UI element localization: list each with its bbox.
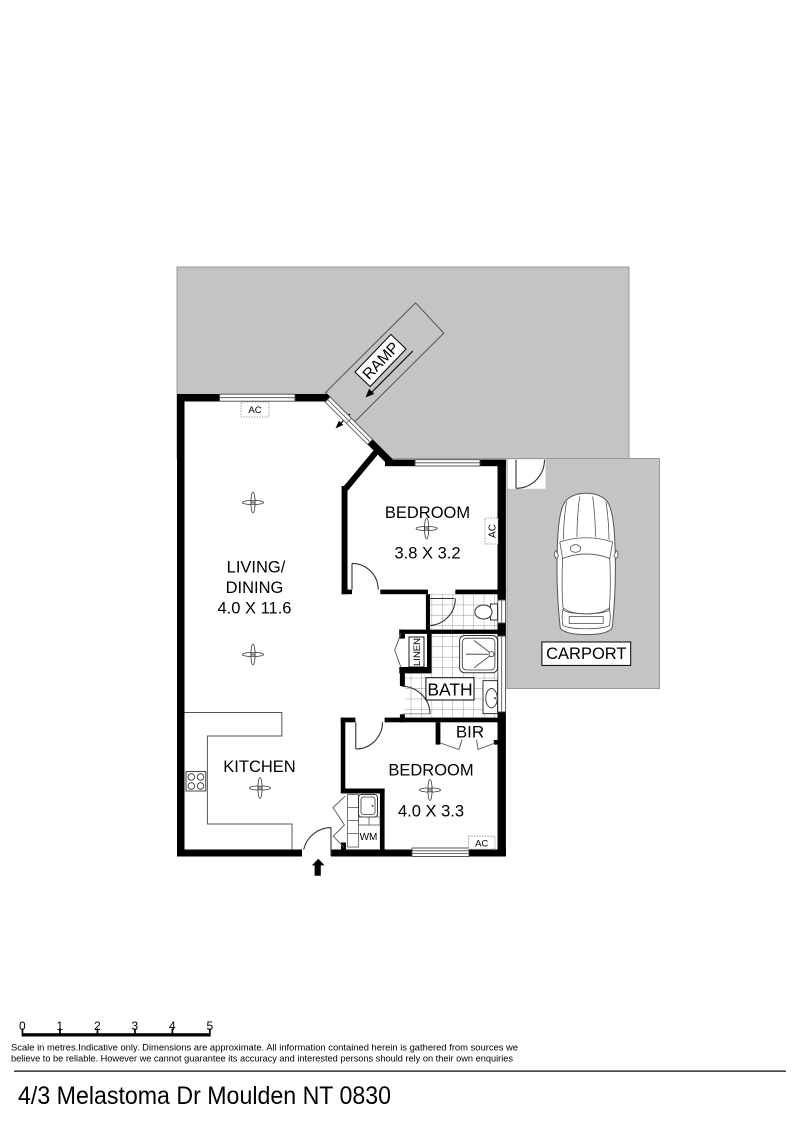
svg-text:LINEN: LINEN bbox=[412, 638, 423, 666]
svg-text:1: 1 bbox=[57, 1019, 64, 1033]
svg-text:AC: AC bbox=[487, 524, 498, 538]
svg-text:AC: AC bbox=[475, 839, 488, 850]
svg-text:2: 2 bbox=[94, 1019, 101, 1033]
svg-text:BEDROOM: BEDROOM bbox=[385, 504, 470, 522]
svg-text:4.0 X 3.3: 4.0 X 3.3 bbox=[398, 803, 464, 821]
svg-text:believe to be reliable. Howeve: believe to be reliable. However we canno… bbox=[11, 1052, 513, 1063]
svg-text:BATH: BATH bbox=[427, 680, 472, 700]
svg-text:4: 4 bbox=[169, 1019, 176, 1033]
svg-text:Scale in metres.Indicative onl: Scale in metres.Indicative only. Dimensi… bbox=[11, 1041, 518, 1052]
svg-text:3.8 X 3.2: 3.8 X 3.2 bbox=[394, 545, 460, 563]
svg-text:4/3 Melastoma Dr Moulden NT 08: 4/3 Melastoma Dr Moulden NT 0830 bbox=[18, 1082, 391, 1110]
svg-text:DINING: DINING bbox=[226, 579, 284, 597]
svg-text:0: 0 bbox=[19, 1019, 26, 1033]
svg-text:5: 5 bbox=[207, 1019, 214, 1033]
svg-text:AC: AC bbox=[248, 405, 261, 416]
svg-text:4.0 X 11.6: 4.0 X 11.6 bbox=[217, 600, 291, 618]
svg-text:LIVING/: LIVING/ bbox=[227, 559, 286, 577]
svg-text:KITCHEN: KITCHEN bbox=[223, 758, 295, 776]
svg-text:CARPORT: CARPORT bbox=[546, 645, 626, 663]
svg-text:BIR: BIR bbox=[456, 723, 484, 742]
svg-text:BEDROOM: BEDROOM bbox=[388, 762, 473, 780]
svg-text:3: 3 bbox=[132, 1019, 139, 1033]
svg-text:WM: WM bbox=[360, 832, 378, 843]
